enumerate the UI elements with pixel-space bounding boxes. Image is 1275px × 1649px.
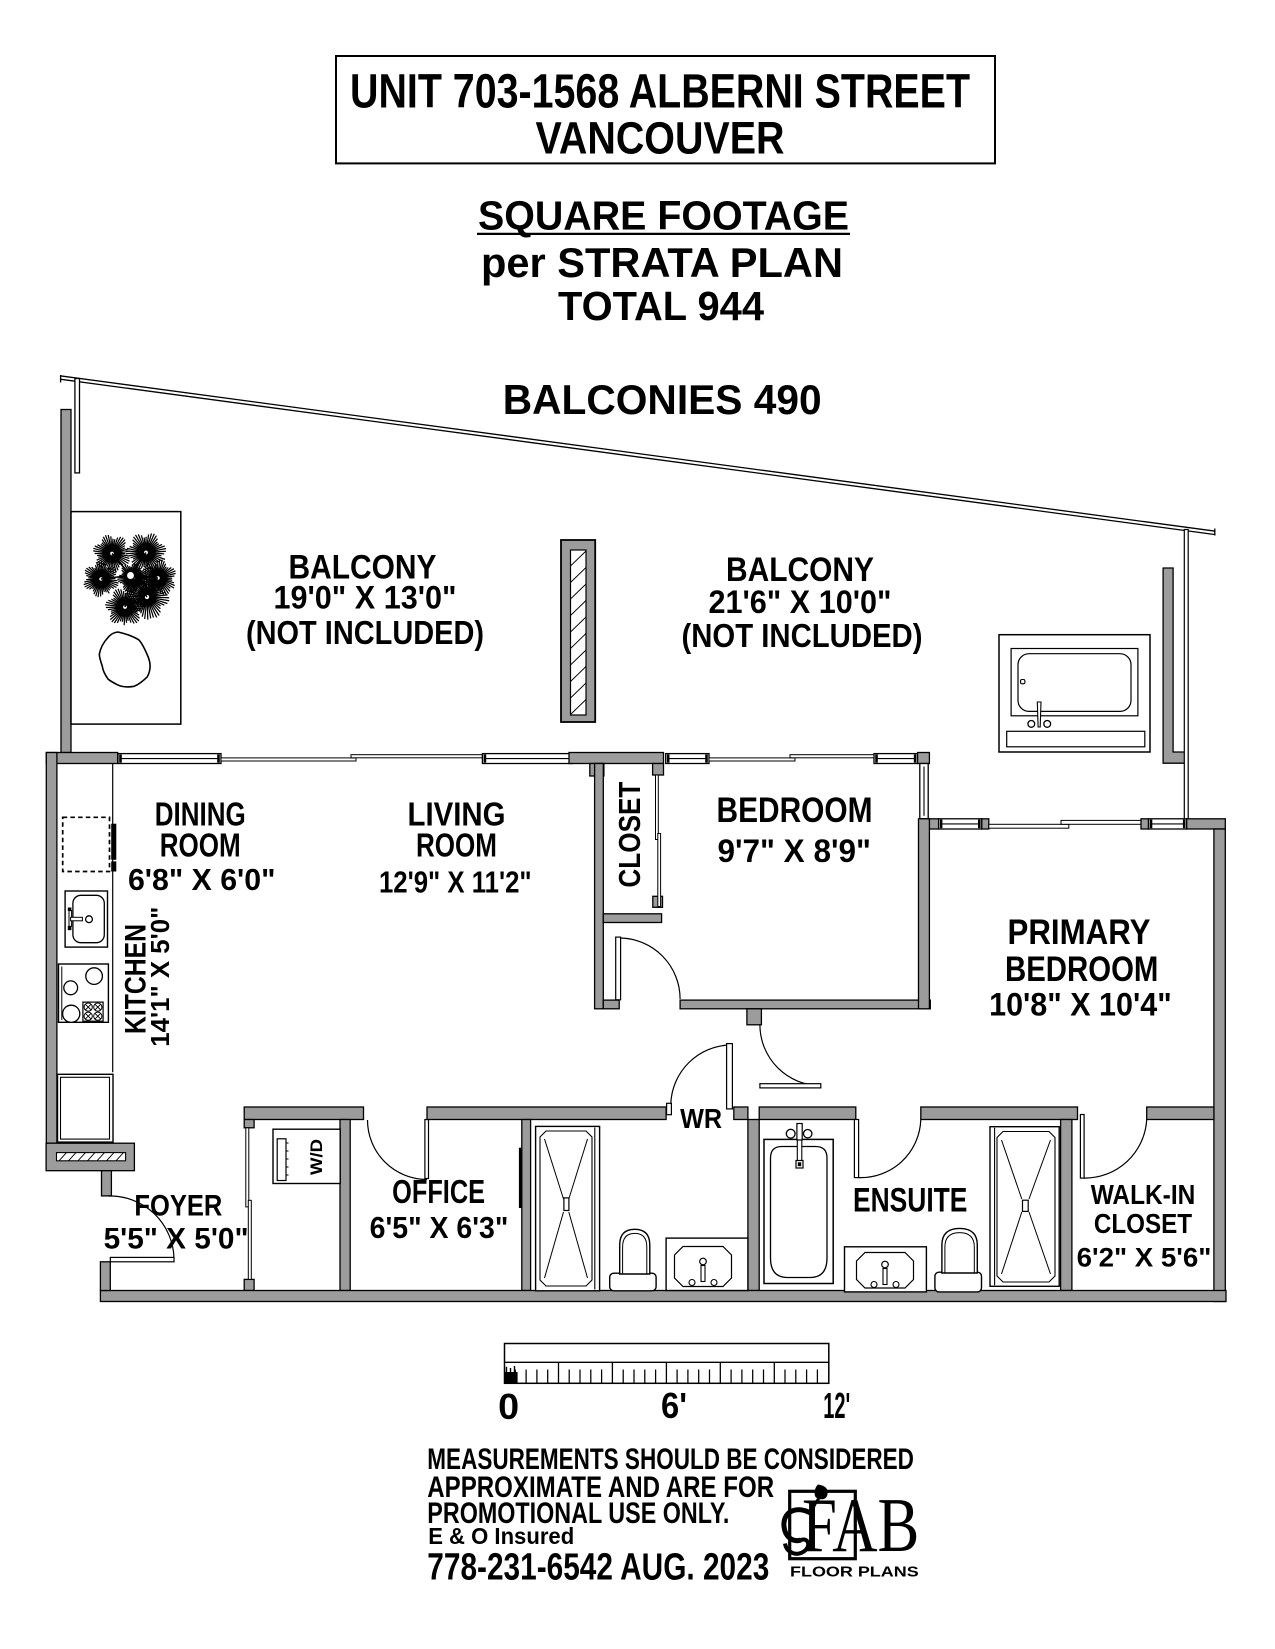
svg-text:6': 6' (661, 1385, 687, 1426)
svg-text:BALCONIES 490: BALCONIES 490 (503, 376, 822, 423)
svg-text:WR: WR (680, 1103, 722, 1134)
svg-text:ROOM: ROOM (416, 826, 497, 863)
svg-text:21'6" X 10'0": 21'6" X 10'0" (709, 584, 892, 620)
svg-text:VANCOUVER: VANCOUVER (536, 113, 785, 164)
svg-text:5'5" X 5'0": 5'5" X 5'0" (104, 1223, 249, 1256)
svg-text:19'0" X 13'0": 19'0" X 13'0" (274, 580, 457, 616)
svg-text:9'7" X 8'9": 9'7" X 8'9" (717, 833, 871, 869)
svg-text:CLOSET: CLOSET (1094, 1208, 1192, 1239)
svg-text:6'2" X 5'6": 6'2" X 5'6" (1077, 1243, 1212, 1273)
svg-text:6'8" X 6'0": 6'8" X 6'0" (128, 862, 276, 897)
svg-text:FLOOR PLANS: FLOOR PLANS (790, 1564, 919, 1581)
svg-text:FOYER: FOYER (134, 1190, 222, 1223)
svg-text:FAB: FAB (802, 1482, 919, 1568)
svg-text:TOTAL 944: TOTAL 944 (558, 283, 764, 329)
svg-text:12'9" X 11'2": 12'9" X 11'2" (379, 865, 532, 900)
svg-text:OFFICE: OFFICE (392, 1173, 485, 1210)
svg-text:PRIMARY: PRIMARY (1008, 913, 1151, 952)
svg-text:CLOSET: CLOSET (612, 782, 647, 888)
svg-text:6'5" X 6'3": 6'5" X 6'3" (370, 1210, 509, 1245)
svg-text:per STRATA PLAN: per STRATA PLAN (481, 239, 843, 286)
svg-text:(NOT INCLUDED): (NOT INCLUDED) (682, 617, 923, 654)
svg-text:BEDROOM: BEDROOM (717, 791, 873, 830)
svg-text:0: 0 (498, 1386, 519, 1427)
svg-text:14'1" X 5'0": 14'1" X 5'0" (145, 907, 175, 1047)
svg-text:SQUARE FOOTAGE: SQUARE FOOTAGE (478, 192, 849, 238)
svg-text:WALK-IN: WALK-IN (1091, 1179, 1196, 1210)
svg-text:(NOT INCLUDED): (NOT INCLUDED) (246, 614, 484, 651)
svg-text:UNIT 703-1568 ALBERNI STREET: UNIT 703-1568 ALBERNI STREET (350, 66, 970, 119)
svg-text:10'8" X 10'4": 10'8" X 10'4" (989, 986, 1172, 1022)
svg-text:778-231-6542 AUG. 2023: 778-231-6542 AUG. 2023 (427, 1546, 769, 1588)
svg-text:E & O Insured: E & O Insured (428, 1523, 574, 1549)
svg-text:BEDROOM: BEDROOM (1005, 950, 1158, 989)
svg-text:ROOM: ROOM (160, 826, 241, 863)
svg-text:ENSUITE: ENSUITE (853, 1181, 967, 1219)
svg-text:W/D: W/D (307, 1139, 326, 1175)
svg-text:12': 12' (823, 1385, 850, 1426)
